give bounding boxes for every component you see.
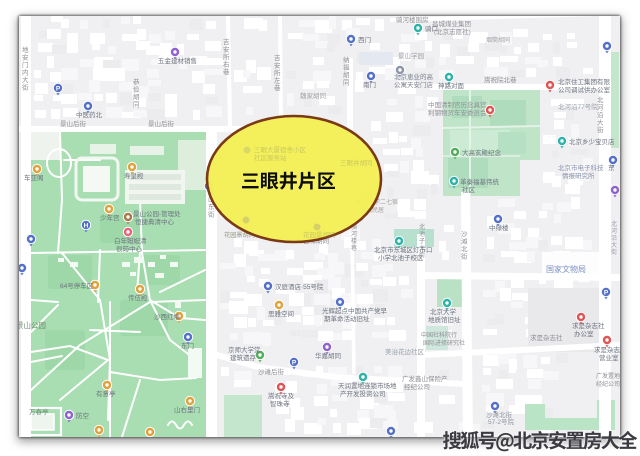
svg-text:吉安所右巷: 吉安所右巷	[223, 38, 230, 76]
svg-text:东: 东	[608, 163, 615, 172]
svg-text:京师大学堂: 京师大学堂	[228, 345, 261, 354]
svg-text:社区服务站: 社区服务站	[254, 153, 287, 162]
svg-text:纳福胡同: 纳福胡同	[343, 55, 350, 87]
svg-text:防空: 防空	[76, 411, 90, 420]
svg-text:嵩祝寺及: 嵩祝寺及	[268, 391, 295, 400]
svg-text:革秦福基伟统: 革秦福基伟统	[460, 177, 500, 186]
svg-text:少年宫: 少年宫	[100, 213, 120, 222]
svg-text:神路对面: 神路对面	[438, 81, 465, 90]
svg-text:景山后街: 景山后街	[60, 119, 87, 128]
svg-text:沙滩后街: 沙滩后街	[258, 367, 285, 376]
svg-text:美治花边社区: 美治花边社区	[385, 347, 425, 356]
svg-text:思雅空间: 思雅空间	[268, 309, 294, 318]
svg-text:北河沿大街: 北河沿大街	[611, 220, 617, 256]
svg-text:华嘉胡同: 华嘉胡同	[315, 351, 341, 360]
svg-text:北河沿大街: 北河沿大街	[597, 96, 604, 134]
svg-text:恭俭胡同: 恭俭胡同	[133, 78, 140, 109]
svg-text:中国社科院行: 中国社科院行	[421, 331, 457, 339]
svg-text:经纪公司: 经纪公司	[404, 382, 430, 391]
svg-text:烟筒胡同: 烟筒胡同	[486, 36, 510, 44]
svg-text:山右里门: 山右里门	[174, 405, 200, 414]
svg-text:H: H	[84, 222, 89, 229]
svg-text:光辉起点中国共产党早: 光辉起点中国共产党早	[322, 306, 388, 315]
svg-text:景山公园: 景山公园	[19, 320, 46, 330]
svg-text:车亚阁: 车亚阁	[24, 173, 44, 182]
svg-text:P: P	[56, 85, 61, 92]
svg-text:骑口: 骑口	[425, 24, 438, 33]
svg-text:社区: 社区	[462, 185, 476, 194]
svg-text:北京住工集团有限: 北京住工集团有限	[558, 77, 611, 86]
svg-text:经纪公司: 经纪公司	[596, 380, 620, 388]
svg-text:北京市东城区灯市口: 北京市东城区灯市口	[374, 245, 433, 254]
svg-text:沙滩北街: 沙滩北街	[461, 231, 468, 261]
svg-text:小学北池子校区: 小学北池子校区	[378, 253, 424, 262]
svg-text:南门: 南门	[363, 80, 376, 89]
svg-text:沙西红墙: 沙西红墙	[154, 312, 181, 321]
svg-text:中医药北: 中医药北	[76, 110, 103, 119]
svg-text:国家文物局: 国家文物局	[546, 264, 586, 274]
svg-text:恒捷典清中心: 恒捷典清中心	[135, 217, 175, 226]
svg-text:中绿楼: 中绿楼	[489, 223, 509, 232]
svg-text:营业室: 营业室	[599, 353, 619, 362]
svg-text:求是杂志社: 求是杂志社	[594, 345, 620, 354]
svg-text:有意亭: 有意亭	[96, 389, 116, 398]
svg-text:地安门内大街: 地安门内大街	[22, 45, 29, 92]
svg-text:天润置地连锁市场地: 天润置地连锁市场地	[338, 381, 397, 390]
svg-text:广发鑫山保险产: 广发鑫山保险产	[402, 374, 448, 383]
svg-text:白年妲妲清: 白年妲妲清	[114, 236, 147, 245]
svg-text:国际进修研究社: 国际进修研究社	[423, 339, 465, 347]
svg-text:建筑遗存: 建筑遗存	[230, 353, 257, 362]
svg-text:广发置地: 广发置地	[596, 372, 620, 380]
svg-text:西门: 西门	[358, 35, 371, 44]
svg-text:骑河楼围房: 骑河楼围房	[396, 16, 429, 24]
svg-text:北京市电子科技: 北京市电子科技	[558, 163, 604, 172]
svg-text:64号停车区: 64号停车区	[60, 281, 94, 290]
svg-text:大高玄殿纪念: 大高玄殿纪念	[462, 148, 502, 157]
svg-text:三眼井胡同: 三眼井胡同	[340, 158, 373, 167]
svg-text:魏家胡同: 魏家胡同	[300, 91, 326, 100]
svg-text:景山学园: 景山学园	[398, 51, 424, 60]
svg-text:求是杂志社: 求是杂志社	[572, 321, 605, 330]
svg-text:寿皇殿: 寿皇殿	[124, 171, 144, 180]
svg-text:期革命活动旧址: 期革命活动旧址	[324, 314, 370, 323]
svg-text:吉安所左巷: 吉安所左巷	[274, 54, 281, 92]
svg-text:P: P	[292, 359, 297, 366]
svg-text:公司调试供办公室: 公司调试供办公室	[558, 85, 611, 94]
svg-text:嵩祝院北巷: 嵩祝院北巷	[484, 75, 517, 84]
svg-text:北京大学: 北京大学	[430, 307, 457, 316]
svg-text:景山后街: 景山后街	[148, 119, 175, 128]
svg-text:花园景胡同: 花园景胡同	[303, 230, 336, 239]
svg-text:五金建材销售: 五金建材销售	[158, 56, 197, 65]
svg-text:北京恵业的高: 北京恵业的高	[394, 72, 434, 81]
svg-text:传伍殿: 传伍殿	[128, 293, 148, 302]
svg-text:P: P	[604, 289, 609, 296]
svg-text:产开发投资公司: 产开发投资公司	[340, 389, 386, 398]
svg-text:地质馆旧址: 地质馆旧址	[428, 315, 461, 324]
svg-text:汉庭酒店·55号院: 汉庭酒店·55号院	[275, 282, 324, 291]
svg-text:办公室: 办公室	[574, 329, 594, 338]
svg-text:景山公园-管理处: 景山公园-管理处	[133, 209, 181, 218]
svg-text:利钢物货车安委员会: 利钢物货车安委员会	[428, 108, 487, 117]
svg-text:北河沿77号院: 北河沿77号院	[558, 102, 598, 111]
svg-text:57-2号院: 57-2号院	[488, 417, 515, 426]
svg-text:求是杂志社: 求是杂志社	[530, 333, 563, 342]
svg-text:情报研究所: 情报研究所	[562, 171, 595, 180]
svg-text:沙滩北街: 沙滩北街	[486, 410, 513, 419]
svg-text:智珠寺: 智珠寺	[270, 399, 290, 408]
svg-text:北京乡少宝贝店: 北京乡少宝贝店	[569, 137, 615, 146]
svg-text:(北京志愿社): (北京志愿社)	[434, 27, 471, 36]
svg-text:公寓天安门店: 公寓天安门店	[394, 80, 434, 89]
svg-text:东门: 东门	[181, 341, 194, 350]
svg-text:中国清制宫历念具官: 中国清制宫历念具官	[428, 100, 487, 109]
svg-text:很筠中心: 很筠中心	[116, 244, 143, 253]
svg-text:三眼大厦宿舍小区: 三眼大厦宿舍小区	[254, 145, 307, 154]
svg-text:万春亭: 万春亭	[29, 407, 49, 416]
